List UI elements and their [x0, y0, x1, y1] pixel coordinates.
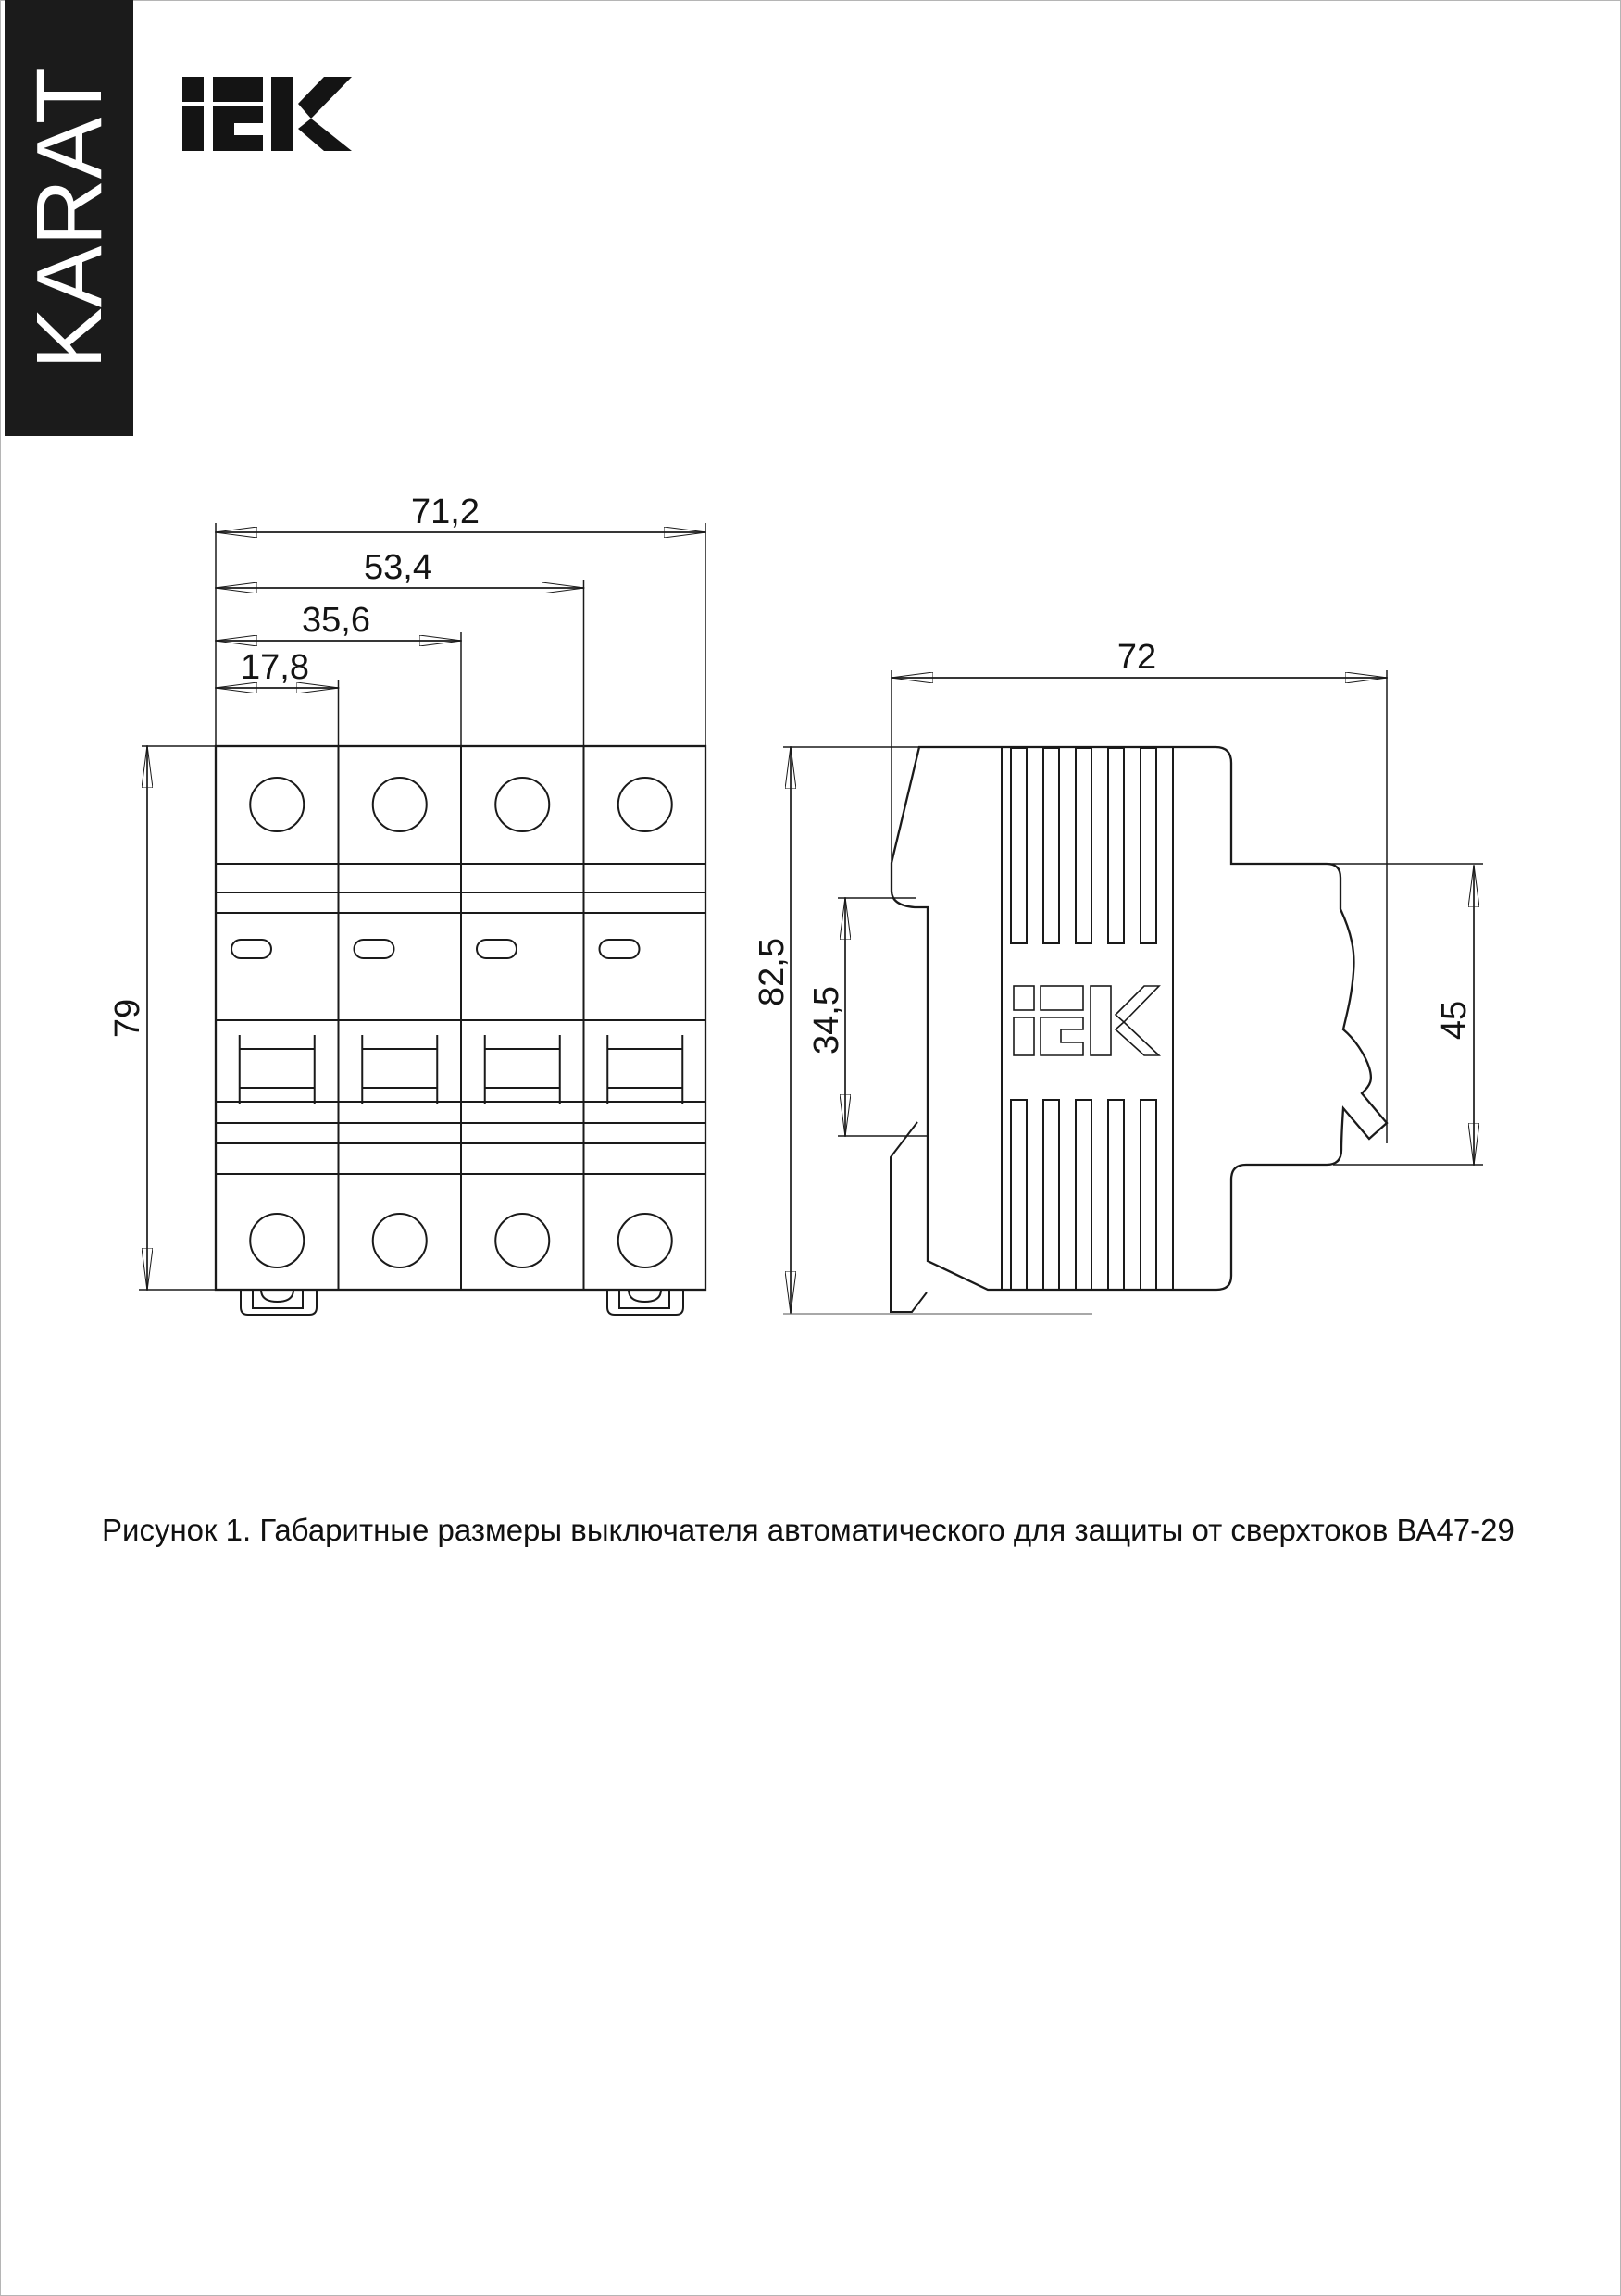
dim-label-two-modules: 35,6	[302, 601, 370, 640]
dim-label-front-depth: 45	[1435, 1001, 1474, 1040]
dim-label-depth: 72	[1117, 638, 1156, 677]
din-spring-clip	[891, 1122, 927, 1312]
dim-label-front-height: 79	[108, 999, 147, 1038]
dim-label-total-width: 71,2	[411, 493, 480, 531]
dim-label-three-modules: 53,4	[364, 548, 432, 587]
dim-label-din-slot: 34,5	[807, 986, 846, 1054]
side-view: 72 82,5 34,5 45	[753, 638, 1483, 1314]
front-view: 71,2 53,4 35,6 17,8 79	[108, 493, 705, 1315]
vent-slots-upper	[1011, 748, 1156, 943]
vent-slots-lower	[1011, 1100, 1156, 1290]
dim-label-one-module: 17,8	[241, 648, 309, 687]
label-windows	[231, 940, 640, 958]
dimension-drawing: 71,2 53,4 35,6 17,8 79	[0, 0, 1621, 1389]
page: KARAT	[0, 0, 1621, 2296]
din-clips	[241, 1290, 683, 1315]
dim-label-side-height: 82,5	[753, 938, 792, 1006]
iek-logo-embossed	[1014, 986, 1159, 1055]
figure-caption: Рисунок 1. Габаритные размеры выключател…	[102, 1513, 1515, 1548]
